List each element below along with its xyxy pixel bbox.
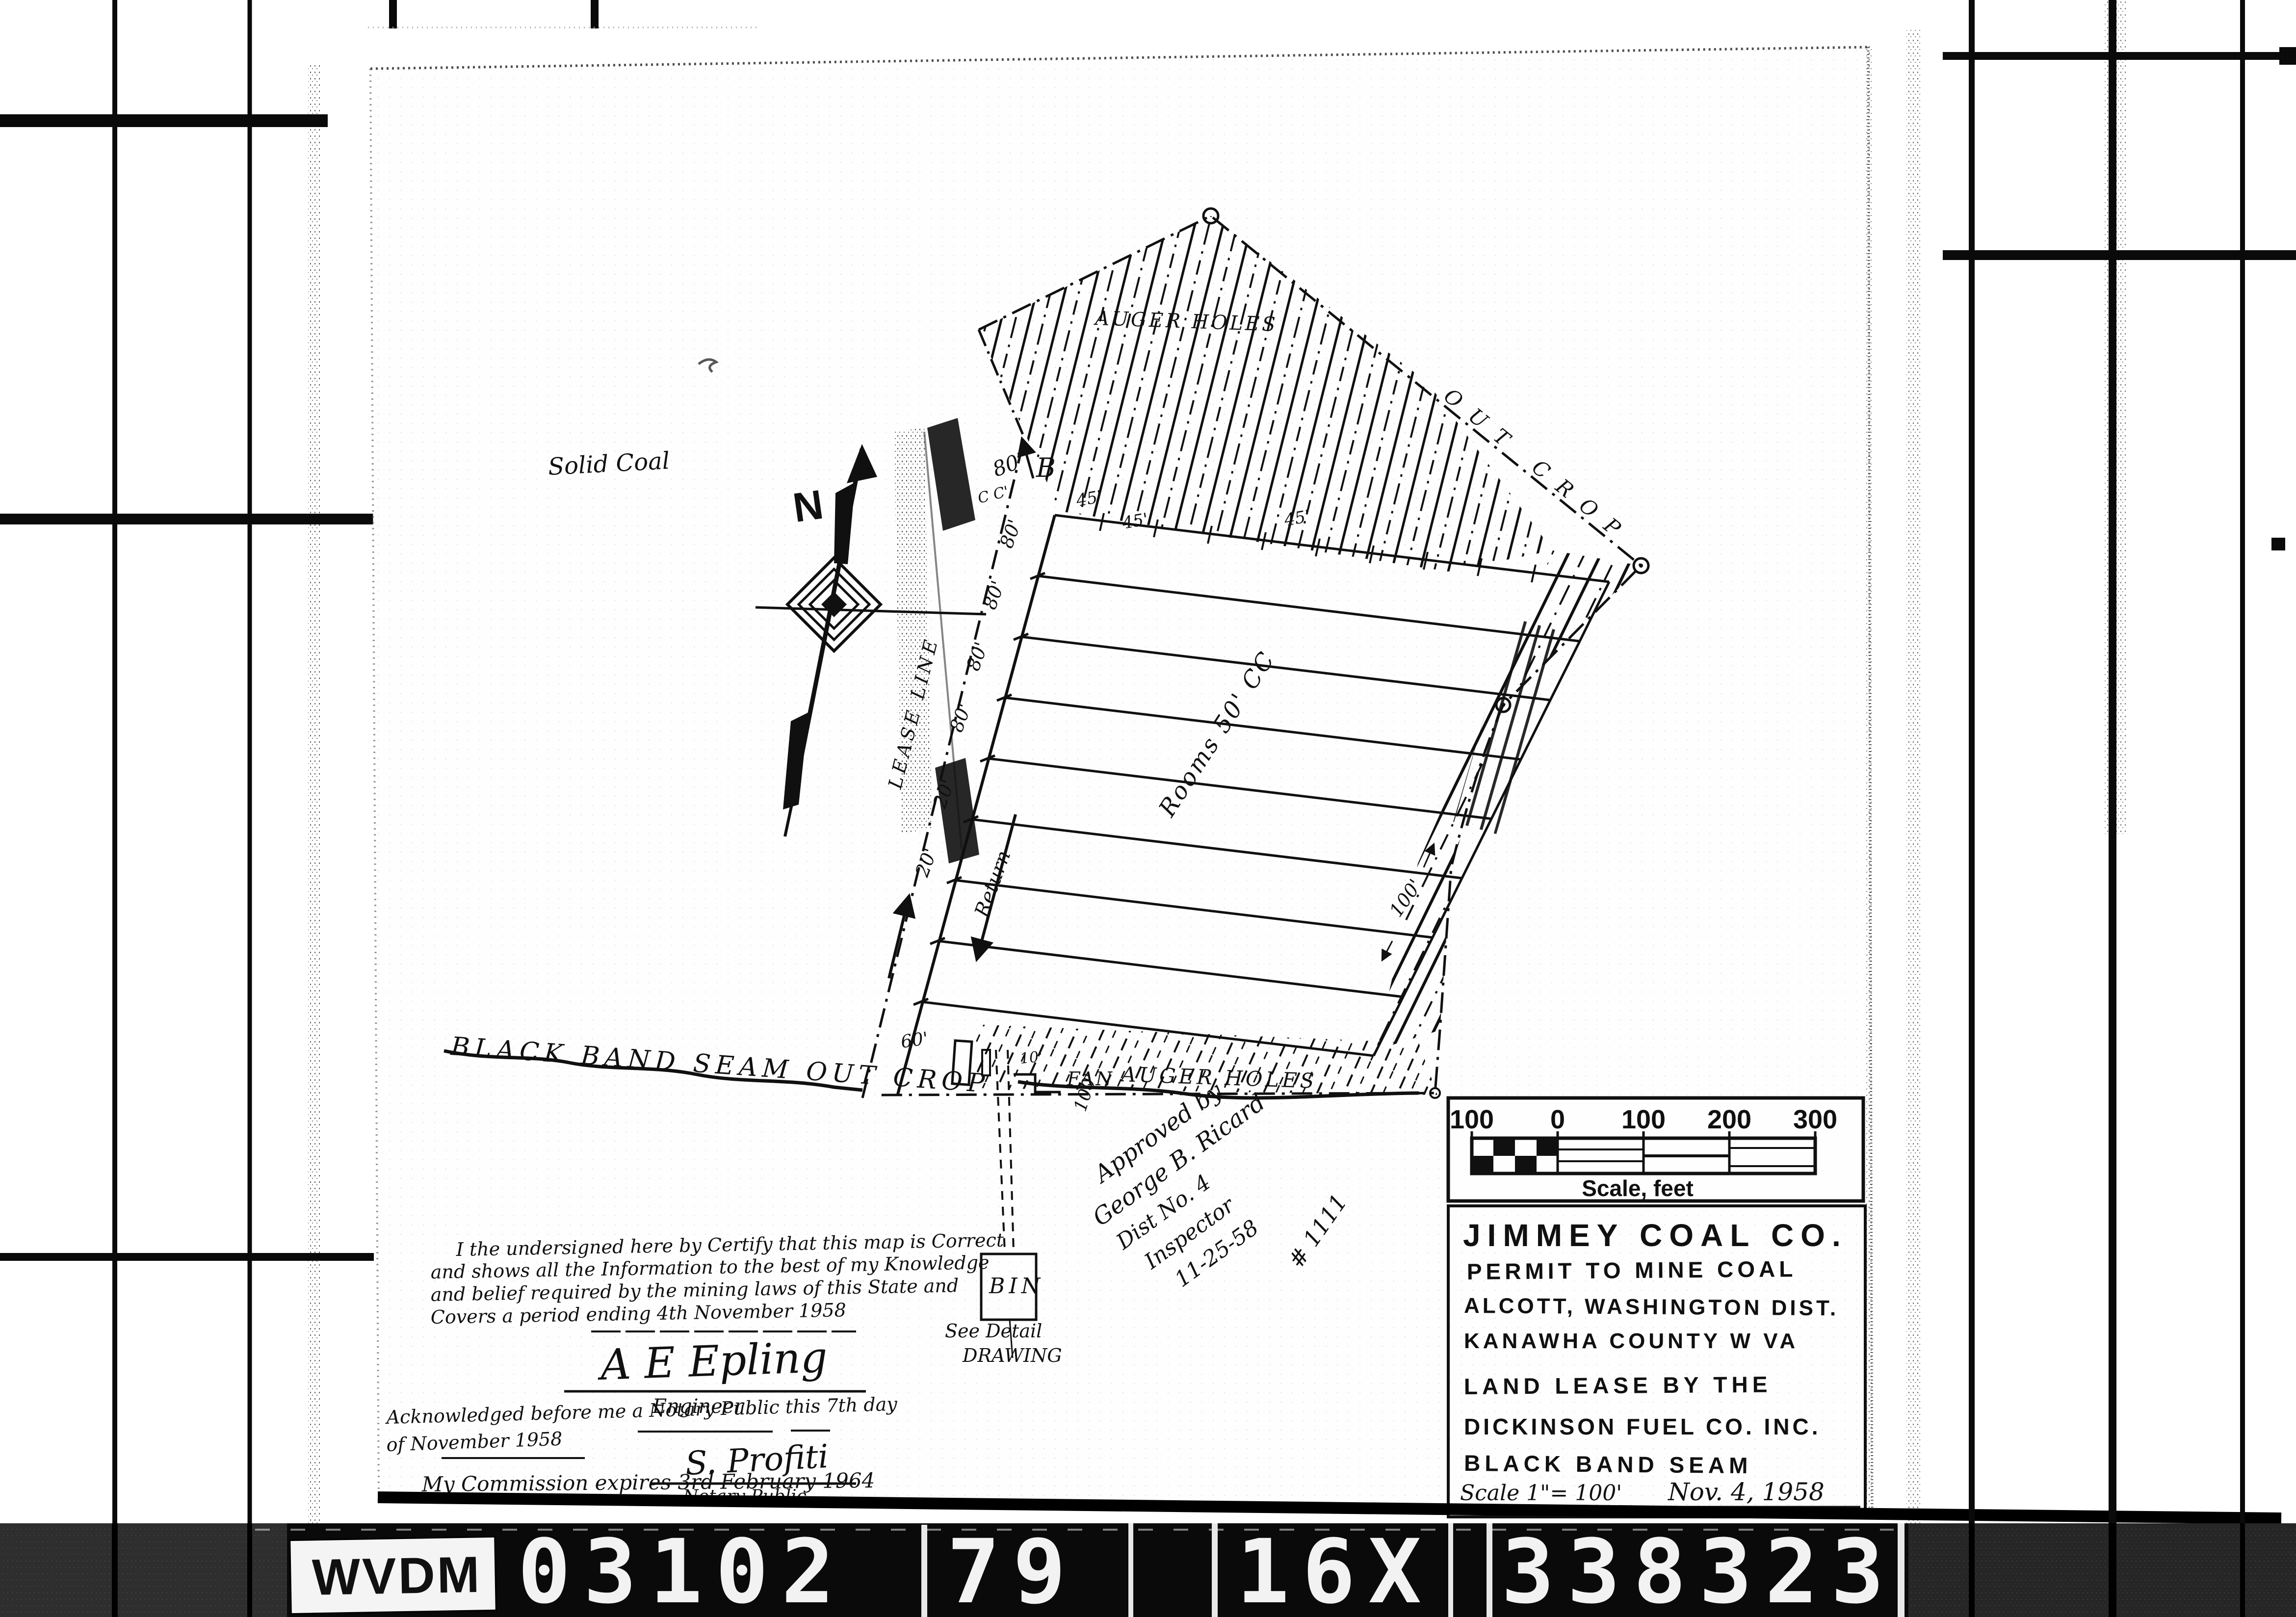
- title-line-5: LAND LEASE BY THE: [1464, 1372, 1772, 1399]
- title-line-3: ALCOTT, WASHINGTON DIST.: [1464, 1294, 1839, 1320]
- scale-tick-200: 200: [1707, 1105, 1751, 1134]
- document-number: 338323: [1501, 1521, 1897, 1617]
- title-company: JIMMEY COAL CO.: [1463, 1218, 1848, 1253]
- grain-stripe-left: [308, 64, 320, 1523]
- bar-right-grain: [1908, 1523, 2296, 1617]
- scale-tick-300: 300: [1793, 1105, 1837, 1134]
- scale-bar: 100 0 100 200 300 Scale, feet: [1448, 1098, 1863, 1201]
- title-line-4: KANAWHA COUNTY W VA: [1464, 1329, 1799, 1353]
- scale-tick-100L: 100: [1450, 1105, 1494, 1134]
- frame-number: 79: [947, 1521, 1079, 1617]
- scale-caption: Scale, feet: [1582, 1175, 1694, 1201]
- label-see-detail-1: See Detail: [945, 1320, 1042, 1342]
- edge-mark-right-1: [2279, 47, 2296, 65]
- commission-line: My Commission expires 3rd February 1964: [421, 1468, 875, 1496]
- microfilm-frame: N Solid Coal LEASE LINE B BLACK BAND SEA…: [0, 0, 2296, 1617]
- survey-point-east-dot: [1639, 564, 1643, 568]
- compass-north-label: N: [790, 481, 826, 531]
- film-bottom-bar: WVDM 03102 79 16X 338323: [0, 1521, 2296, 1617]
- scale-tick-0: 0: [1550, 1105, 1565, 1134]
- survey-point-mid-dot: [1501, 703, 1505, 707]
- scale-tick-100R: 100: [1621, 1105, 1666, 1134]
- bar-left-grain: [0, 1523, 287, 1617]
- title-line-7: BLACK BAND SEAM: [1464, 1450, 1752, 1478]
- title-scale-note: Scale 1"= 100': [1460, 1481, 1622, 1506]
- dim-10-portal: 10': [1019, 1048, 1044, 1068]
- label-bin: BIN: [989, 1274, 1044, 1299]
- reel-number: 03102: [518, 1521, 847, 1617]
- edge-mark-right-2: [2271, 538, 2285, 550]
- engineer-signature: A E Epling: [596, 1333, 828, 1390]
- grain-stripe-right-1: [1906, 29, 1921, 1523]
- label-see-detail-2: DRAWING: [962, 1345, 1062, 1366]
- label-point-b: B: [1036, 452, 1056, 483]
- agency-label-text: WVDM: [312, 1546, 482, 1606]
- title-date: Nov. 4, 1958: [1668, 1478, 1825, 1506]
- reduction-factor: 16X: [1236, 1521, 1434, 1617]
- title-line-6: DICKINSON FUEL CO. INC.: [1464, 1414, 1821, 1439]
- dim-60-outcrop: 60': [900, 1029, 930, 1052]
- sheet-edge-grain: [1866, 45, 1872, 1514]
- title-line-2: PERMIT TO MINE COAL: [1467, 1256, 1797, 1284]
